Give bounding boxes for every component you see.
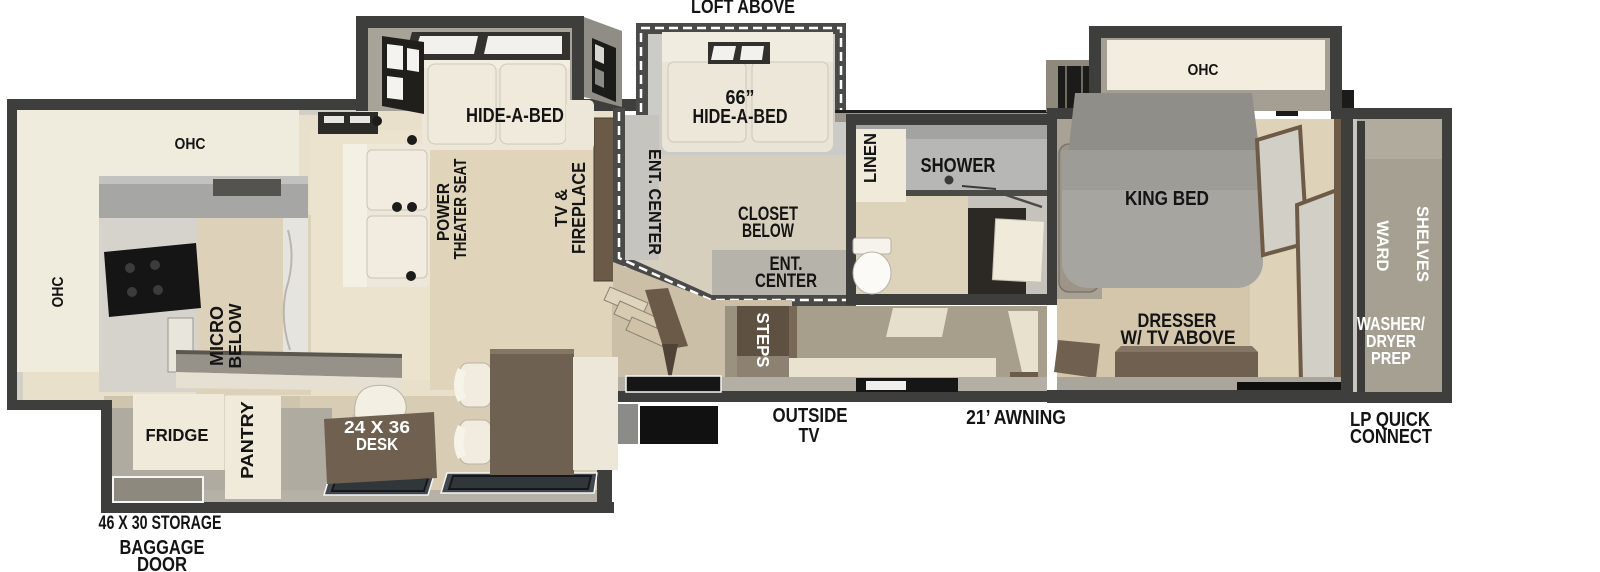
svg-text:BELOW: BELOW xyxy=(225,303,245,368)
svg-text:CONNECT: CONNECT xyxy=(1350,424,1433,447)
svg-text:FIREPLACE: FIREPLACE xyxy=(568,162,589,254)
svg-text:PREP: PREP xyxy=(1371,349,1411,369)
svg-text:SHOWER: SHOWER xyxy=(921,154,996,177)
svg-text:OHC: OHC xyxy=(49,276,67,307)
svg-text:TV: TV xyxy=(798,423,820,446)
svg-text:HIDE-A-BED: HIDE-A-BED xyxy=(466,104,564,127)
svg-text:FRIDGE: FRIDGE xyxy=(146,424,209,445)
svg-text:DESK: DESK xyxy=(356,434,398,455)
svg-text:46 X 30 STORAGE: 46 X 30 STORAGE xyxy=(99,512,222,534)
svg-text:WARD: WARD xyxy=(1373,221,1392,272)
svg-text:DOOR: DOOR xyxy=(137,553,187,572)
svg-text:BELOW: BELOW xyxy=(742,220,794,242)
svg-text:CENTER: CENTER xyxy=(755,269,818,291)
svg-text:THEATER SEAT: THEATER SEAT xyxy=(451,158,470,259)
svg-text:SHELVES: SHELVES xyxy=(1413,206,1432,282)
svg-text:HIDE-A-BED: HIDE-A-BED xyxy=(693,105,788,127)
svg-text:KING BED: KING BED xyxy=(1125,187,1209,210)
svg-text:W/ TV ABOVE: W/ TV ABOVE xyxy=(1121,326,1236,348)
svg-text:OHC: OHC xyxy=(1188,61,1219,79)
svg-text:LOFT ABOVE: LOFT ABOVE xyxy=(691,0,795,17)
svg-text:OHC: OHC xyxy=(175,135,206,153)
svg-text:STEPS: STEPS xyxy=(753,313,774,368)
svg-text:ENT. CENTER: ENT. CENTER xyxy=(645,149,665,255)
svg-text:LINEN: LINEN xyxy=(859,133,880,183)
svg-text:POWER: POWER xyxy=(433,183,453,241)
svg-text:21’ AWNING: 21’ AWNING xyxy=(966,406,1066,428)
svg-text:PANTRY: PANTRY xyxy=(237,401,257,479)
